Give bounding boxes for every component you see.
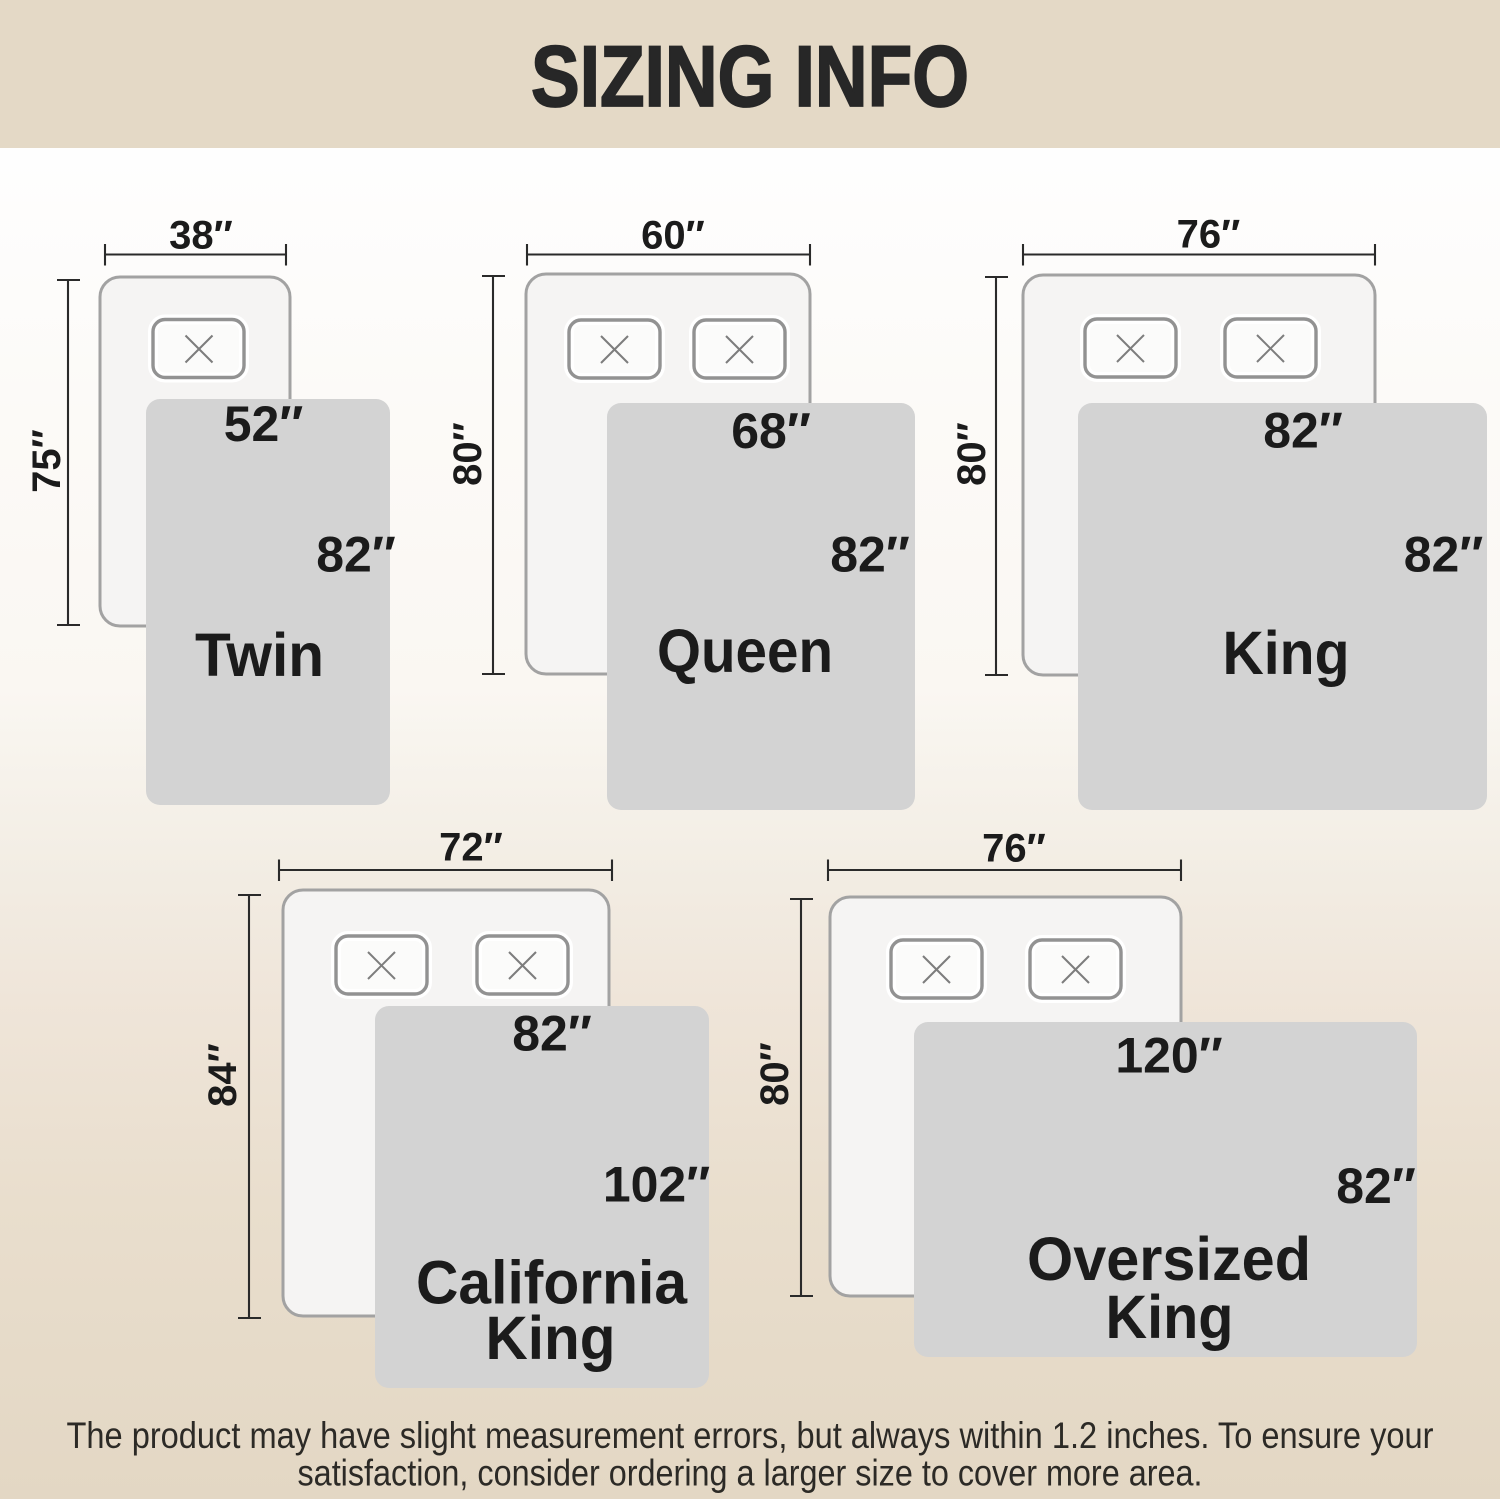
svg-text:SIZING INFO: SIZING INFO	[531, 29, 969, 125]
svg-text:76″: 76″	[982, 827, 1046, 871]
svg-text:68″: 68″	[731, 403, 811, 459]
svg-text:120″: 120″	[1115, 1028, 1222, 1084]
svg-text:75″: 75″	[25, 429, 69, 493]
svg-text:King: King	[1223, 619, 1350, 687]
svg-text:The product may have slight me: The product may have slight measurement …	[67, 1415, 1434, 1456]
svg-text:Queen: Queen	[657, 617, 833, 685]
svg-text:80″: 80″	[753, 1042, 797, 1106]
svg-text:82″: 82″	[1263, 403, 1343, 459]
svg-text:76″: 76″	[1177, 213, 1241, 257]
svg-text:Twin: Twin	[195, 621, 324, 689]
svg-text:60″: 60″	[641, 214, 705, 258]
svg-text:82″: 82″	[1336, 1158, 1416, 1214]
svg-text:satisfaction, consider orderin: satisfaction, consider ordering a larger…	[298, 1453, 1203, 1494]
svg-text:80″: 80″	[950, 422, 994, 486]
svg-text:72″: 72″	[439, 826, 503, 870]
svg-text:82″: 82″	[512, 1006, 592, 1062]
svg-text:King: King	[486, 1304, 616, 1372]
svg-text:102″: 102″	[603, 1157, 710, 1213]
svg-text:80″: 80″	[446, 422, 490, 486]
svg-text:82″: 82″	[1404, 527, 1484, 583]
svg-text:38″: 38″	[169, 214, 233, 258]
svg-text:82″: 82″	[830, 527, 910, 583]
svg-text:52″: 52″	[224, 396, 304, 452]
svg-text:King: King	[1106, 1283, 1234, 1351]
svg-text:82″: 82″	[316, 527, 396, 583]
svg-text:84″: 84″	[201, 1043, 245, 1107]
